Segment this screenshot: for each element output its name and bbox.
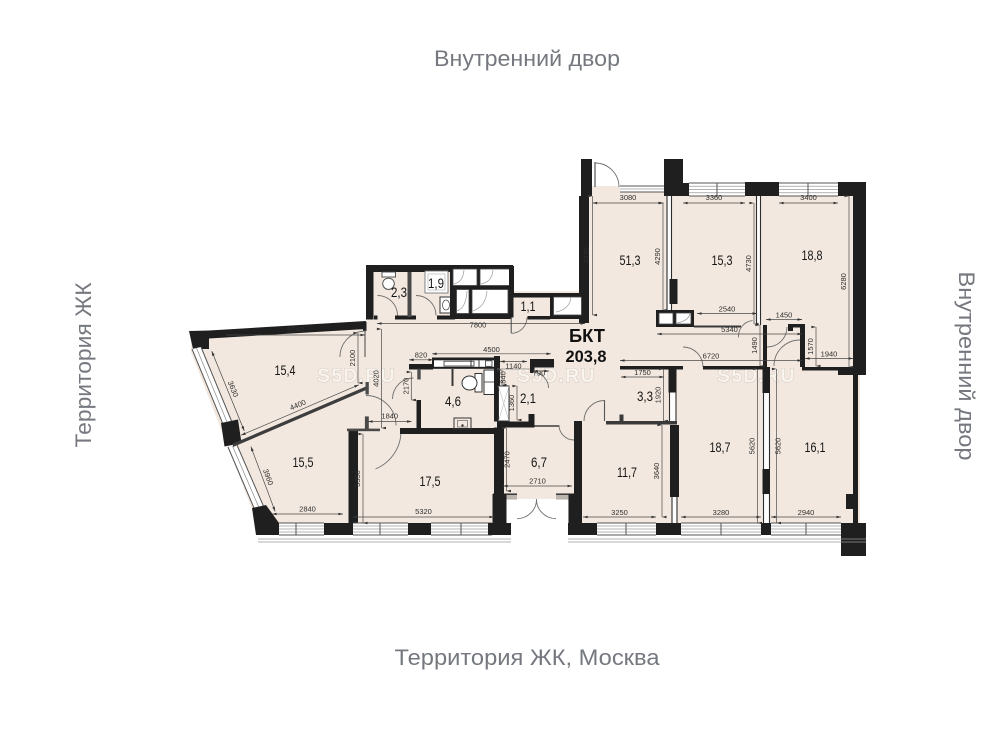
svg-text:6,7: 6,7 (531, 454, 547, 470)
svg-text:18,7: 18,7 (710, 439, 731, 455)
svg-text:5340: 5340 (721, 325, 738, 334)
svg-text:5320: 5320 (415, 507, 432, 516)
svg-text:Внутренний двор: Внутренний двор (434, 46, 620, 71)
svg-text:2470: 2470 (503, 451, 512, 468)
svg-text:5620: 5620 (748, 438, 757, 455)
svg-text:1360: 1360 (507, 395, 516, 412)
svg-text:17,5: 17,5 (420, 473, 441, 489)
svg-text:4020: 4020 (372, 370, 381, 387)
svg-text:2170: 2170 (402, 378, 411, 395)
svg-text:790: 790 (533, 369, 546, 378)
svg-text:1570: 1570 (806, 338, 815, 355)
svg-text:1490: 1490 (750, 337, 759, 354)
svg-text:2,1: 2,1 (520, 390, 536, 406)
svg-text:16,1: 16,1 (805, 439, 826, 455)
svg-text:1840: 1840 (381, 412, 398, 421)
svg-text:1,9: 1,9 (428, 275, 444, 291)
svg-text:2100: 2100 (348, 350, 357, 367)
svg-text:3,3: 3,3 (637, 388, 653, 404)
svg-text:3280: 3280 (713, 508, 730, 517)
svg-text:3360: 3360 (706, 193, 723, 202)
svg-text:2940: 2940 (798, 508, 815, 517)
svg-text:6720: 6720 (703, 352, 720, 361)
svg-text:Территория ЖК: Территория ЖК (71, 283, 96, 448)
svg-text:820: 820 (415, 351, 428, 360)
svg-text:2,3: 2,3 (391, 284, 407, 300)
svg-text:4930: 4930 (582, 247, 591, 264)
svg-text:Внутренний двор: Внутренний двор (954, 272, 979, 461)
svg-text:2540: 2540 (719, 305, 736, 314)
svg-text:БКТ: БКТ (569, 326, 605, 346)
svg-text:2710: 2710 (529, 477, 546, 486)
svg-text:4290: 4290 (653, 248, 662, 265)
svg-text:S5D.RU: S5D.RU (317, 365, 396, 387)
svg-text:4,6: 4,6 (445, 393, 461, 409)
svg-text:1750: 1750 (634, 368, 651, 377)
svg-text:1140: 1140 (505, 362, 521, 371)
svg-text:3250: 3250 (611, 508, 628, 517)
svg-text:15,5: 15,5 (293, 454, 314, 470)
svg-text:1920: 1920 (654, 387, 663, 404)
svg-text:3350: 3350 (353, 470, 362, 487)
svg-text:S5D.RU: S5D.RU (517, 365, 596, 387)
svg-text:4730: 4730 (744, 255, 753, 272)
svg-text:5620: 5620 (774, 438, 783, 455)
svg-text:2840: 2840 (299, 505, 316, 514)
svg-text:3400: 3400 (800, 193, 817, 202)
svg-text:1450: 1450 (776, 311, 793, 320)
svg-text:4500: 4500 (483, 345, 500, 354)
svg-text:203,8: 203,8 (566, 347, 607, 366)
svg-text:1,1: 1,1 (521, 298, 536, 314)
svg-text:3640: 3640 (652, 463, 661, 480)
svg-text:5240: 5240 (287, 325, 304, 334)
svg-text:1940: 1940 (821, 350, 838, 359)
svg-text:15,3: 15,3 (712, 252, 733, 268)
svg-text:3080: 3080 (620, 193, 637, 202)
svg-text:Территория ЖК, Москва: Территория ЖК, Москва (395, 645, 661, 670)
svg-text:11,7: 11,7 (617, 464, 637, 480)
svg-text:18,8: 18,8 (802, 247, 823, 263)
svg-text:15,4: 15,4 (275, 362, 296, 378)
svg-text:6280: 6280 (839, 273, 848, 290)
svg-text:840: 840 (499, 371, 508, 384)
svg-text:7800: 7800 (470, 321, 487, 330)
svg-text:51,3: 51,3 (620, 252, 641, 268)
